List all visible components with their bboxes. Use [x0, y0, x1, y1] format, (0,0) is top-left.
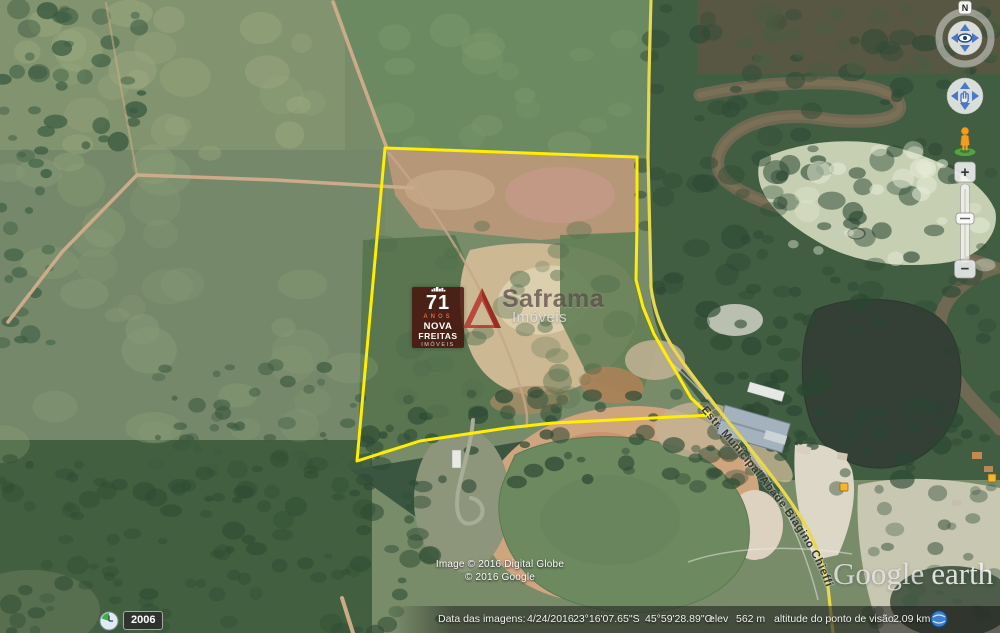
- north-button[interactable]: N: [959, 1, 972, 14]
- elevation-value: 562 m: [736, 613, 765, 625]
- latitude-value: 23°16'07.65"S: [573, 613, 640, 625]
- attribution-line1: Image © 2016 Digital Globe: [434, 558, 566, 571]
- skyline-icon: [421, 287, 455, 292]
- zoom-in-label: +: [961, 164, 970, 181]
- nova-freitas-name1: NOVA: [424, 322, 453, 332]
- longitude-value: 45°59'28.89"O: [645, 613, 713, 625]
- hand-icon: [961, 92, 968, 103]
- imagery-date-value: 4/24/2016: [527, 613, 574, 625]
- navigation-controls[interactable]: N: [925, 0, 1000, 290]
- nova-freitas-watermark: 71 ANOS NOVA FREITAS IMÓVEIS: [412, 287, 464, 348]
- eye-icon: [959, 34, 972, 42]
- history-clock-icon[interactable]: [98, 610, 120, 632]
- saframa-pyramid-icon: [462, 286, 502, 330]
- saframa-tagline: Imóveis: [512, 309, 567, 326]
- zoom-out-label: −: [961, 261, 970, 278]
- look-joystick[interactable]: N: [935, 1, 995, 68]
- zoom-slider-thumb[interactable]: [956, 213, 974, 224]
- nova-freitas-anos: ANOS: [423, 314, 452, 320]
- google-logo-text: Google: [833, 556, 924, 591]
- imagery-attribution: Image © 2016 Digital Globe © 2016 Google: [434, 558, 566, 584]
- eye-altitude-label: altitude do ponto de visão: [774, 613, 894, 625]
- google-earth-logo: Googleearth: [833, 556, 993, 592]
- imagery-date-label: Data das imagens:: [438, 613, 526, 625]
- move-joystick[interactable]: [947, 78, 983, 114]
- nova-freitas-name3: IMÓVEIS: [421, 343, 454, 349]
- google-earth-viewport[interactable]: Estr. Municipal Abade Biagino Chieffi N: [0, 0, 1000, 633]
- compass-n-label: N: [962, 3, 969, 13]
- eye-altitude-value: 2.09 km: [893, 613, 930, 625]
- attribution-line2: © 2016 Google: [434, 571, 566, 584]
- zoom-control[interactable]: + −: [955, 162, 976, 278]
- status-globe-icon: [930, 610, 948, 628]
- nova-freitas-years: 71: [426, 293, 450, 313]
- street-view-pegman[interactable]: [954, 127, 976, 156]
- nova-freitas-name2: FREITAS: [418, 332, 457, 341]
- status-bar: Data das imagens: 4/24/2016 23°16'07.65"…: [393, 606, 1000, 633]
- elevation-label: elev: [709, 613, 728, 625]
- imagery-year-badge[interactable]: 2006: [123, 611, 163, 630]
- earth-logo-text: earth: [931, 556, 993, 591]
